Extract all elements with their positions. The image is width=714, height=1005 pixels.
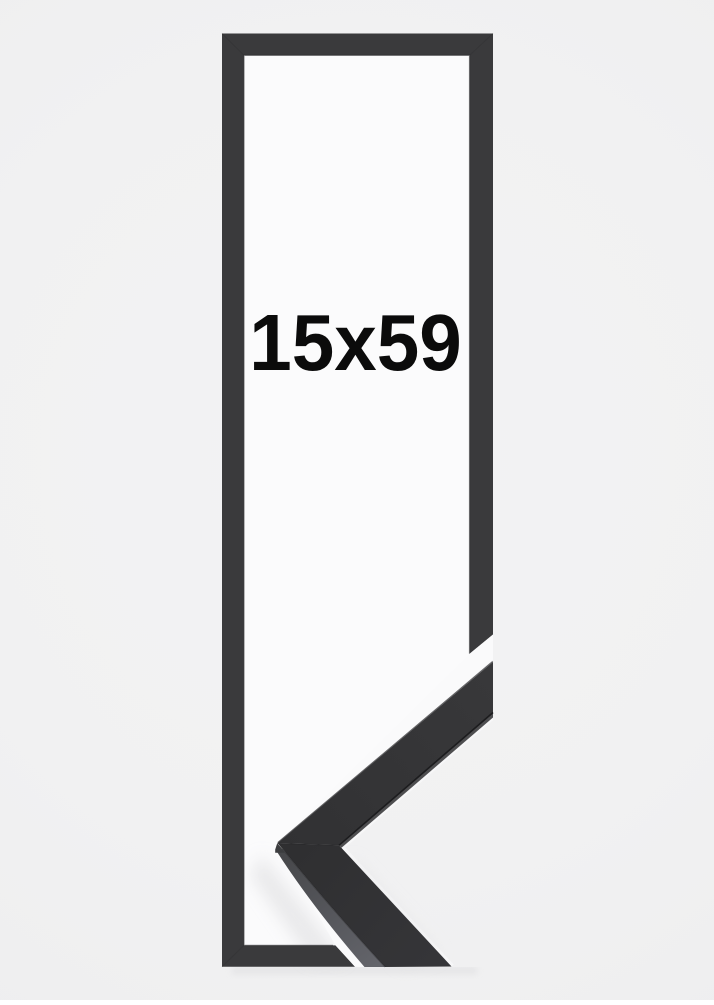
svg-text:15x59: 15x59 xyxy=(249,298,462,387)
